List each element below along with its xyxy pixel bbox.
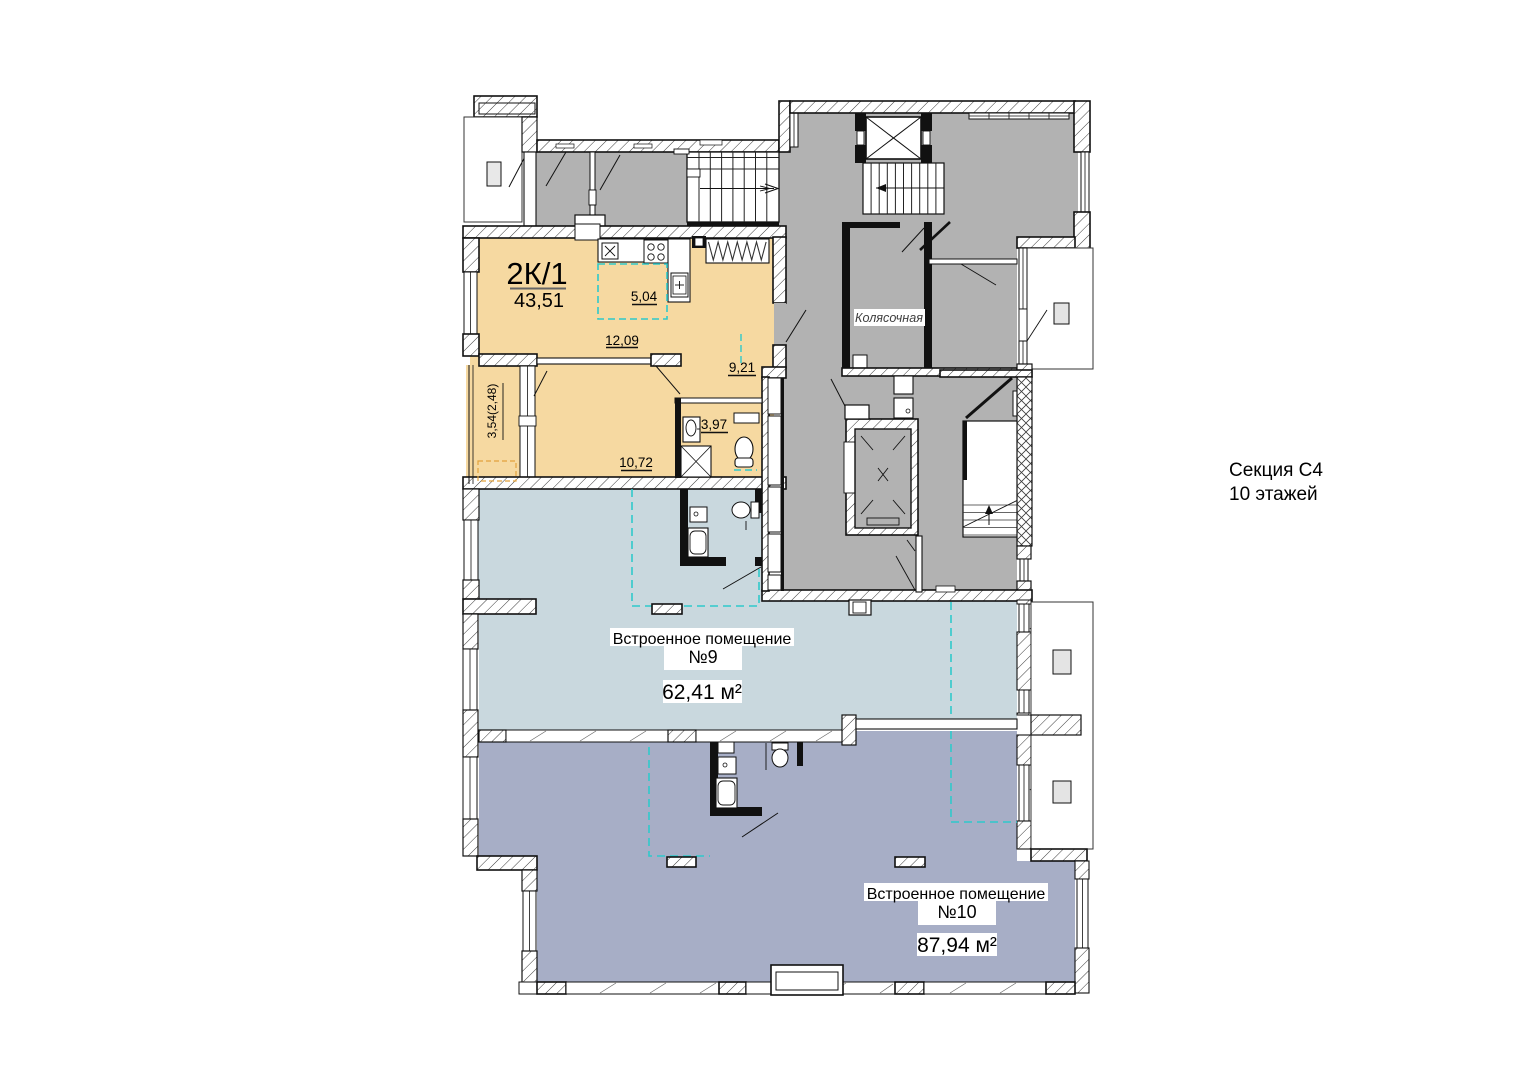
svg-text:43,51: 43,51 (514, 290, 564, 312)
svg-text:62,41 м²: 62,41 м² (662, 681, 742, 704)
svg-text:№9: №9 (688, 647, 717, 667)
svg-text:Секция С4: Секция С4 (1229, 460, 1323, 481)
svg-text:Колясочная: Колясочная (855, 311, 923, 325)
svg-text:10,72: 10,72 (619, 455, 653, 470)
svg-text:12,09: 12,09 (605, 333, 639, 348)
svg-text:87,94 м²: 87,94 м² (917, 934, 997, 957)
svg-text:3,54(2,48): 3,54(2,48) (485, 384, 499, 439)
svg-text:10 этажей: 10 этажей (1229, 484, 1318, 505)
svg-text:2К/1: 2К/1 (506, 256, 567, 291)
svg-text:9,21: 9,21 (729, 360, 755, 375)
svg-text:3,97: 3,97 (701, 417, 727, 432)
svg-text:5,04: 5,04 (631, 289, 658, 304)
svg-text:Встроенное помещение: Встроенное помещение (613, 631, 792, 648)
svg-text:№10: №10 (937, 902, 976, 922)
svg-text:Встроенное помещение: Встроенное помещение (867, 886, 1046, 903)
